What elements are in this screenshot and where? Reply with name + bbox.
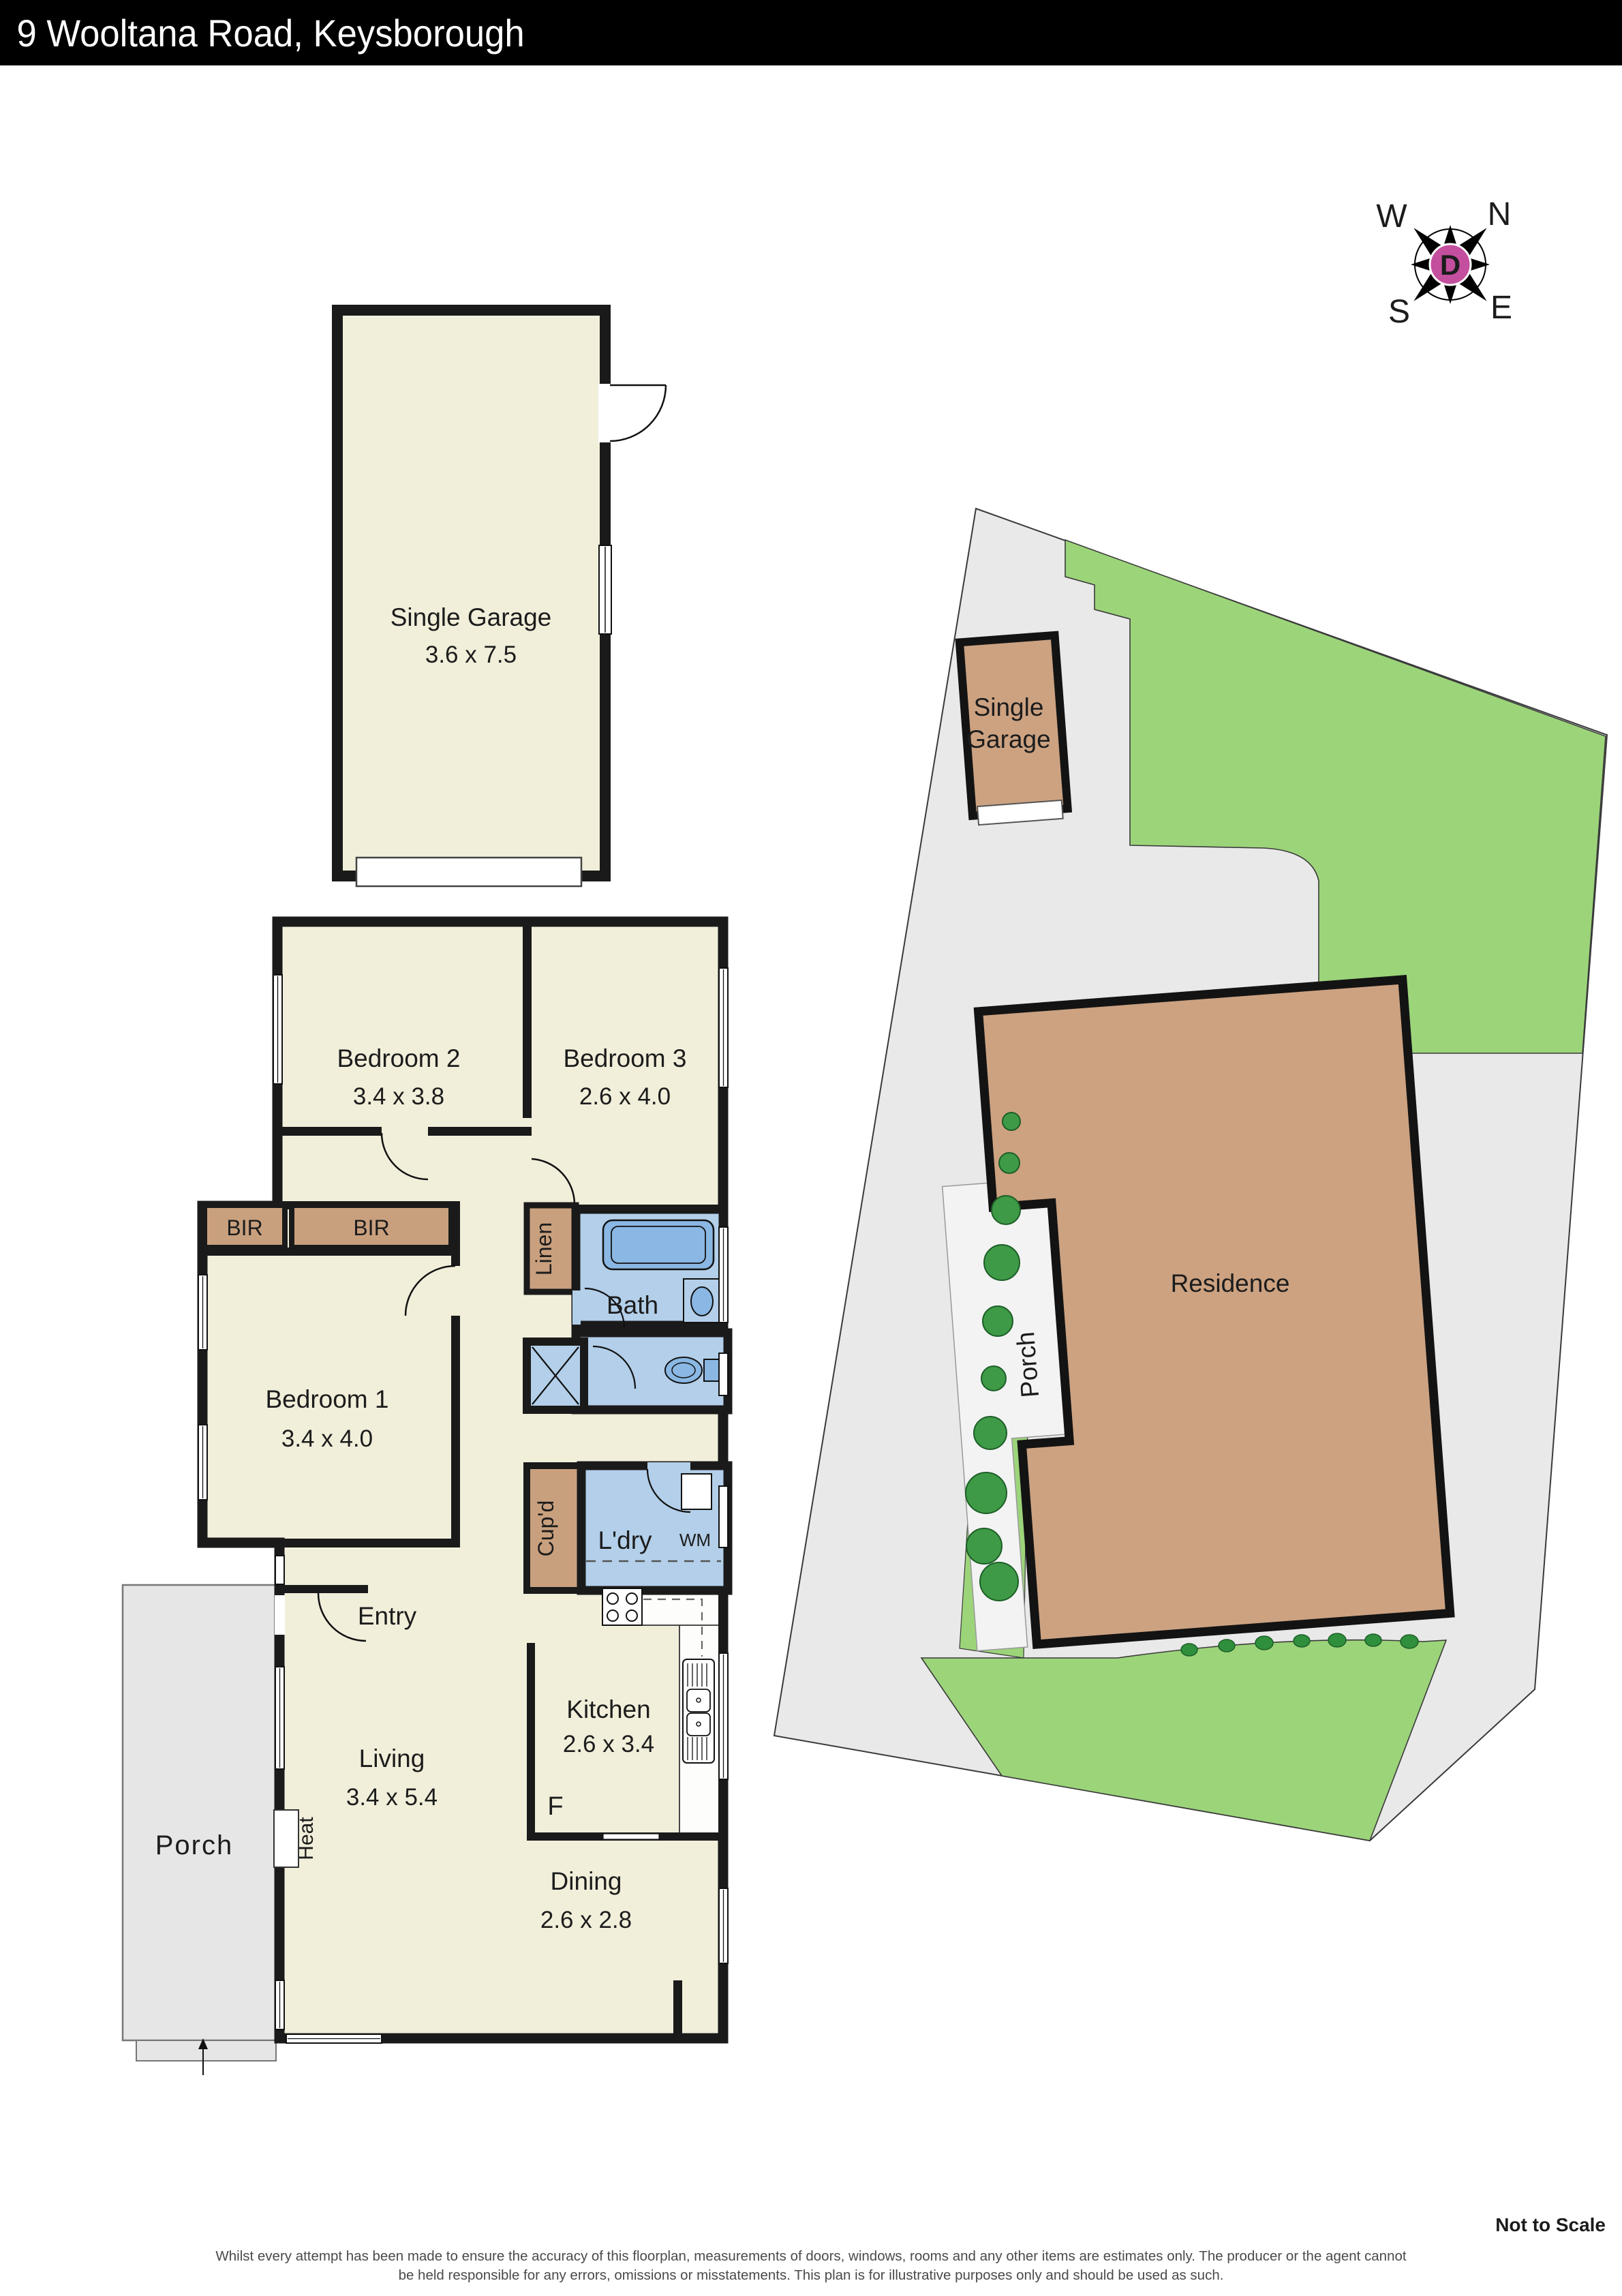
floorplan-canvas: Porch Single Garage Residen bbox=[0, 0, 1622, 2296]
kitchen-label: Kitchen bbox=[566, 1695, 650, 1723]
bush-icon bbox=[1181, 1644, 1197, 1656]
tree-icon bbox=[966, 1472, 1007, 1513]
wall bbox=[527, 1643, 535, 1841]
compass-s: S bbox=[1388, 294, 1410, 330]
floor-plan: Porch Single Garage 3.6 x 7.5 bbox=[123, 310, 728, 2075]
bedroom2-dims: 3.4 x 3.8 bbox=[353, 1083, 444, 1110]
wall bbox=[273, 1127, 382, 1136]
site-porch-label: Porch bbox=[1011, 1331, 1044, 1398]
door-arc bbox=[610, 385, 666, 441]
garage-side-door-opening bbox=[598, 384, 612, 442]
window bbox=[275, 1556, 284, 1584]
window bbox=[719, 1486, 728, 1547]
compass-e: E bbox=[1490, 290, 1512, 326]
tree-icon bbox=[984, 1245, 1020, 1280]
rear-lawn bbox=[921, 1640, 1446, 1841]
room-garage: Single Garage 3.6 x 7.5 bbox=[337, 310, 666, 886]
entry-label: Entry bbox=[358, 1602, 417, 1630]
linen-label: Linen bbox=[532, 1222, 556, 1275]
bedroom3-label: Bedroom 3 bbox=[564, 1044, 687, 1072]
tree-icon bbox=[983, 1306, 1013, 1336]
compass: D W N S E bbox=[1376, 196, 1512, 330]
compass-w: W bbox=[1376, 198, 1407, 235]
bush-icon bbox=[1401, 1635, 1418, 1648]
compass-n: N bbox=[1488, 196, 1512, 232]
tree-icon bbox=[980, 1562, 1018, 1601]
porch-area bbox=[123, 1585, 279, 2040]
heat-label: Heat bbox=[295, 1817, 318, 1860]
bath-door-opening bbox=[572, 1290, 581, 1325]
garage-dims: 3.6 x 7.5 bbox=[425, 641, 517, 668]
disclaimer: Whilst every attempt has been made to en… bbox=[0, 2247, 1622, 2285]
toilet-tank bbox=[704, 1359, 719, 1381]
tree-icon bbox=[966, 1528, 1002, 1564]
tree-icon bbox=[981, 1366, 1006, 1391]
bir1-label: BIR bbox=[226, 1215, 262, 1240]
tree-icon bbox=[999, 1153, 1020, 1173]
wall bbox=[451, 1316, 460, 1547]
site-garage-label-1: Single bbox=[974, 693, 1044, 721]
entry-door-opening bbox=[275, 1595, 285, 1635]
laundry-door-opening bbox=[647, 1462, 690, 1470]
bedroom1-label: Bedroom 1 bbox=[266, 1385, 389, 1413]
bush-icon bbox=[1219, 1640, 1235, 1652]
tree-icon bbox=[1003, 1113, 1020, 1130]
window bbox=[719, 1353, 728, 1395]
disclaimer-line-2: be held responsible for any errors, omis… bbox=[0, 2266, 1622, 2285]
dining-label: Dining bbox=[551, 1867, 622, 1895]
basin bbox=[691, 1287, 713, 1316]
porch-steps bbox=[136, 2040, 276, 2061]
site-residence-label: Residence bbox=[1171, 1269, 1290, 1297]
dining-dims: 2.6 x 2.8 bbox=[540, 1907, 632, 1933]
bedroom2-label: Bedroom 2 bbox=[337, 1044, 461, 1072]
shower bbox=[527, 1342, 584, 1410]
wall bbox=[673, 1980, 682, 2042]
bush-icon bbox=[1365, 1634, 1381, 1646]
bathtub bbox=[603, 1220, 714, 1269]
tree-icon bbox=[974, 1417, 1007, 1449]
fridge-label: F bbox=[547, 1792, 563, 1821]
site-plan: Porch Single Garage Residen bbox=[774, 509, 1607, 1841]
bush-icon bbox=[1328, 1633, 1346, 1647]
ldry-label: L'dry bbox=[598, 1526, 652, 1554]
toilet bbox=[665, 1357, 702, 1383]
bedroom3-dims: 2.6 x 4.0 bbox=[579, 1083, 671, 1110]
room-bath: Bath bbox=[572, 1209, 723, 1328]
bir2-label: BIR bbox=[353, 1215, 389, 1240]
living-dims: 3.4 x 5.4 bbox=[346, 1784, 438, 1811]
wall bbox=[523, 922, 532, 1118]
tree-icon bbox=[992, 1196, 1020, 1224]
site-garage-label-2: Garage bbox=[966, 725, 1050, 753]
porch-label: Porch bbox=[155, 1830, 234, 1860]
garage-door bbox=[356, 858, 581, 886]
wall bbox=[428, 1127, 532, 1136]
wall bbox=[279, 1585, 368, 1593]
kitchen-dims: 2.6 x 3.4 bbox=[563, 1731, 654, 1757]
washing-machine bbox=[682, 1474, 711, 1509]
bush-icon bbox=[1255, 1636, 1273, 1650]
bedroom1-dims: 3.4 x 4.0 bbox=[281, 1425, 373, 1452]
kitchen-servery-opening bbox=[603, 1834, 659, 1839]
living-label: Living bbox=[359, 1744, 425, 1772]
wall bbox=[202, 1539, 460, 1547]
not-to-scale-note: Not to Scale bbox=[1495, 2214, 1606, 2236]
garage-walls bbox=[337, 310, 605, 876]
garage-label: Single Garage bbox=[391, 603, 552, 631]
bath-label: Bath bbox=[607, 1291, 658, 1319]
compass-d: D bbox=[1440, 249, 1460, 281]
room-laundry: L'dry WM bbox=[581, 1462, 728, 1590]
room-toilet bbox=[572, 1333, 728, 1410]
bush-icon bbox=[1294, 1635, 1310, 1647]
cupd-label: Cup'd bbox=[534, 1500, 558, 1557]
wm-label: WM bbox=[679, 1530, 711, 1550]
disclaimer-line-1: Whilst every attempt has been made to en… bbox=[0, 2247, 1622, 2266]
